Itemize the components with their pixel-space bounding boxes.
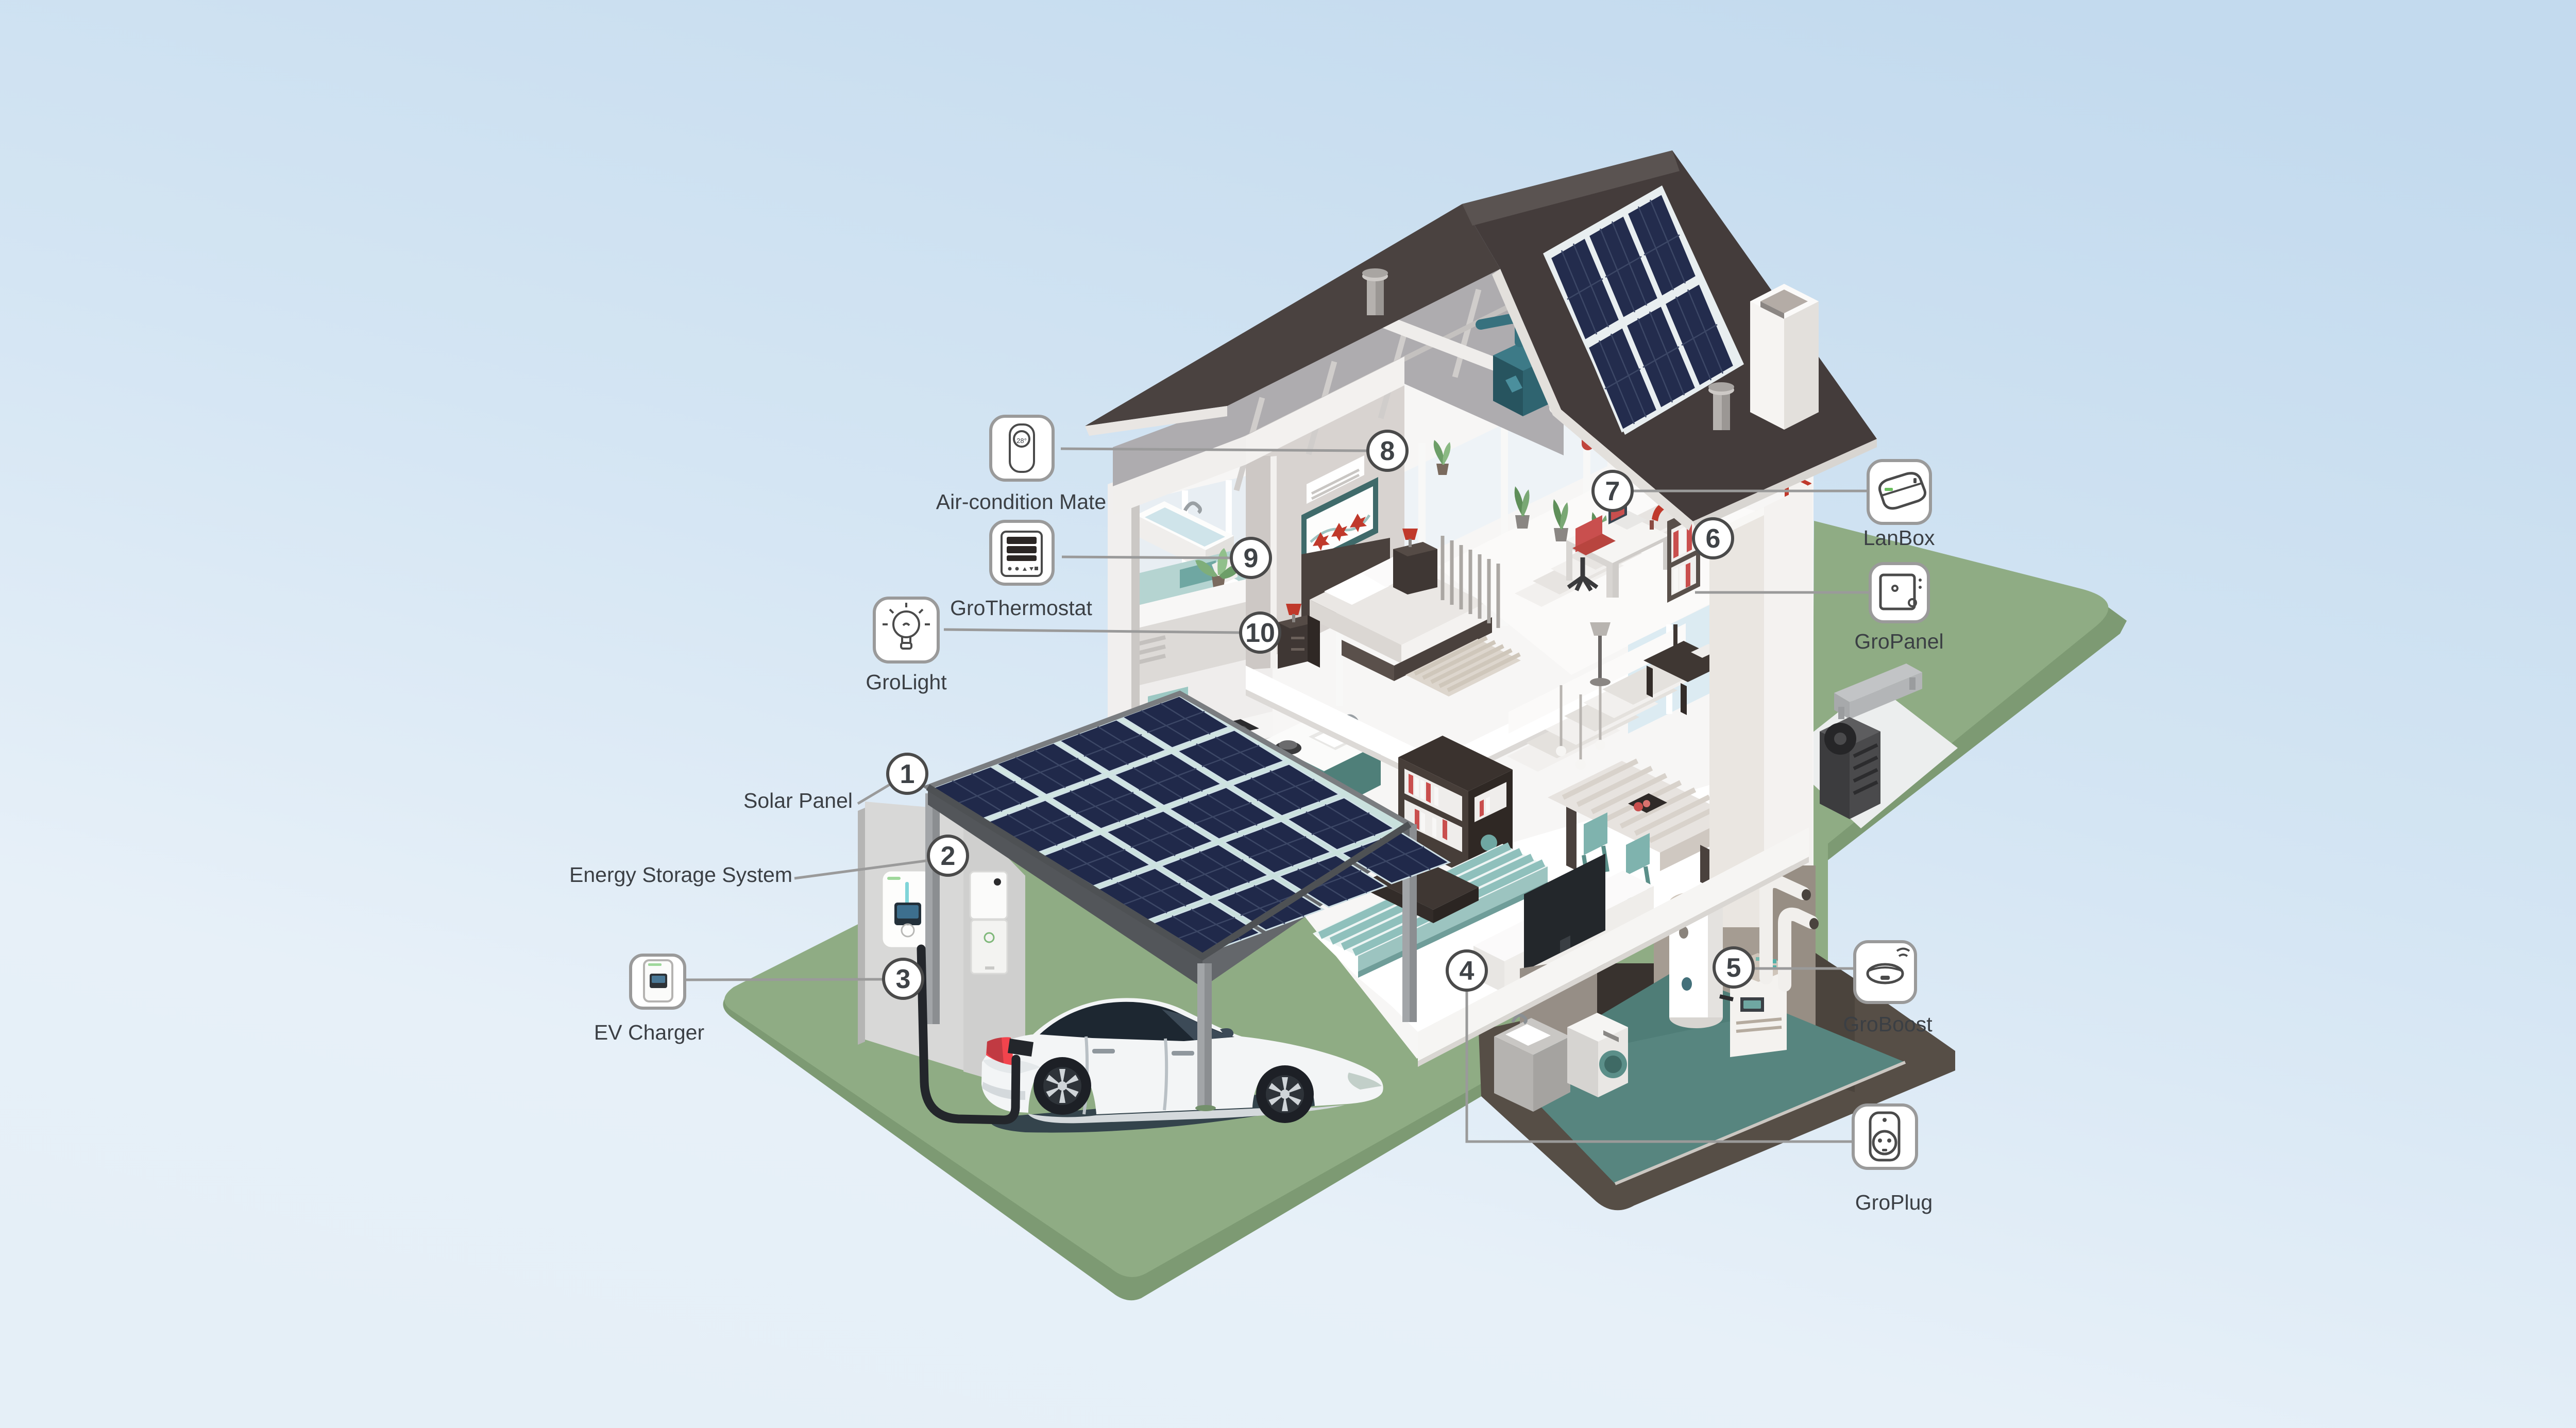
svg-text:1: 1: [900, 759, 915, 789]
svg-text:EV Charger: EV Charger: [594, 1021, 704, 1044]
svg-text:4: 4: [1460, 956, 1475, 986]
svg-text:Air-condition Mate: Air-condition Mate: [936, 490, 1106, 514]
svg-text:10: 10: [1245, 618, 1275, 648]
svg-text:28°: 28°: [1016, 437, 1027, 445]
svg-text:LanBox: LanBox: [1863, 526, 1935, 550]
svg-text:9: 9: [1244, 543, 1259, 573]
svg-text:GroThermostat: GroThermostat: [950, 596, 1092, 620]
svg-text:GroLight: GroLight: [866, 670, 947, 694]
svg-text:8: 8: [1380, 436, 1395, 466]
svg-text:7: 7: [1605, 477, 1620, 506]
svg-text:5: 5: [1726, 953, 1741, 983]
svg-text:GroBoost: GroBoost: [1843, 1012, 1933, 1036]
svg-text:Solar Panel: Solar Panel: [743, 789, 853, 812]
svg-text:GroPlug: GroPlug: [1855, 1191, 1933, 1214]
svg-text:6: 6: [1706, 524, 1721, 554]
svg-text:GroPanel: GroPanel: [1854, 630, 1943, 653]
svg-text:2: 2: [941, 841, 956, 871]
svg-text:Energy Storage System: Energy Storage System: [569, 863, 792, 887]
svg-text:3: 3: [896, 964, 911, 994]
